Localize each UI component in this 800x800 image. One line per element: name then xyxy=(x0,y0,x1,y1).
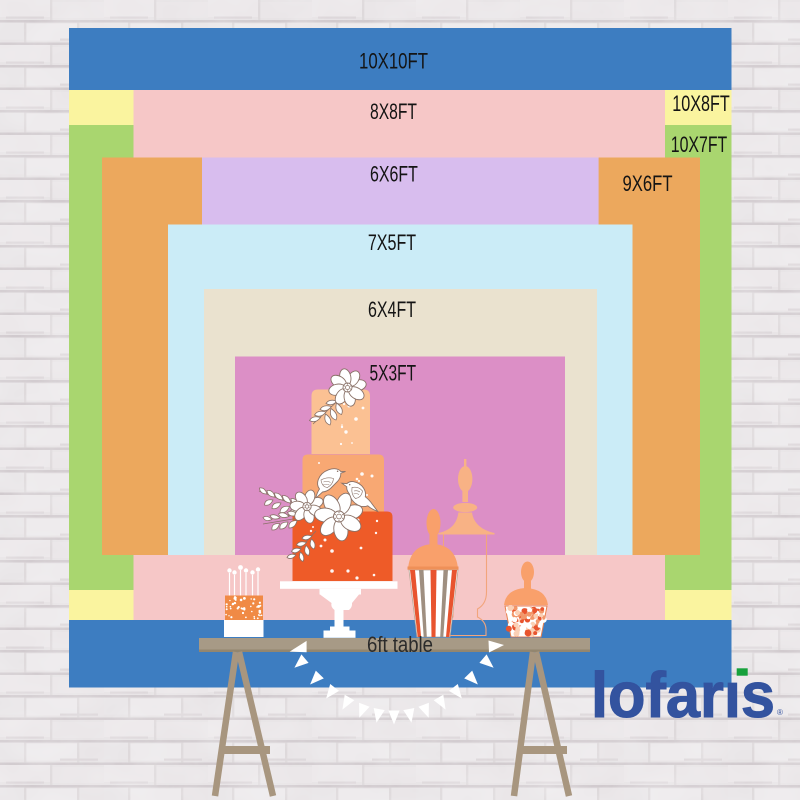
svg-text:10X8FT: 10X8FT xyxy=(672,91,730,116)
svg-text:5X3FT: 5X3FT xyxy=(370,361,417,386)
svg-text:10X10FT: 10X10FT xyxy=(359,49,428,74)
svg-text:6X6FT: 6X6FT xyxy=(370,161,418,186)
svg-text:6X4FT: 6X4FT xyxy=(368,297,416,322)
svg-text:9X6FT: 9X6FT xyxy=(623,171,673,196)
svg-text:8X8FT: 8X8FT xyxy=(370,99,417,124)
svg-text:10X7FT: 10X7FT xyxy=(671,132,728,157)
svg-text:7X5FT: 7X5FT xyxy=(368,230,416,255)
svg-text:6ft table: 6ft table xyxy=(367,632,433,657)
svg-text:®: ® xyxy=(777,708,783,717)
